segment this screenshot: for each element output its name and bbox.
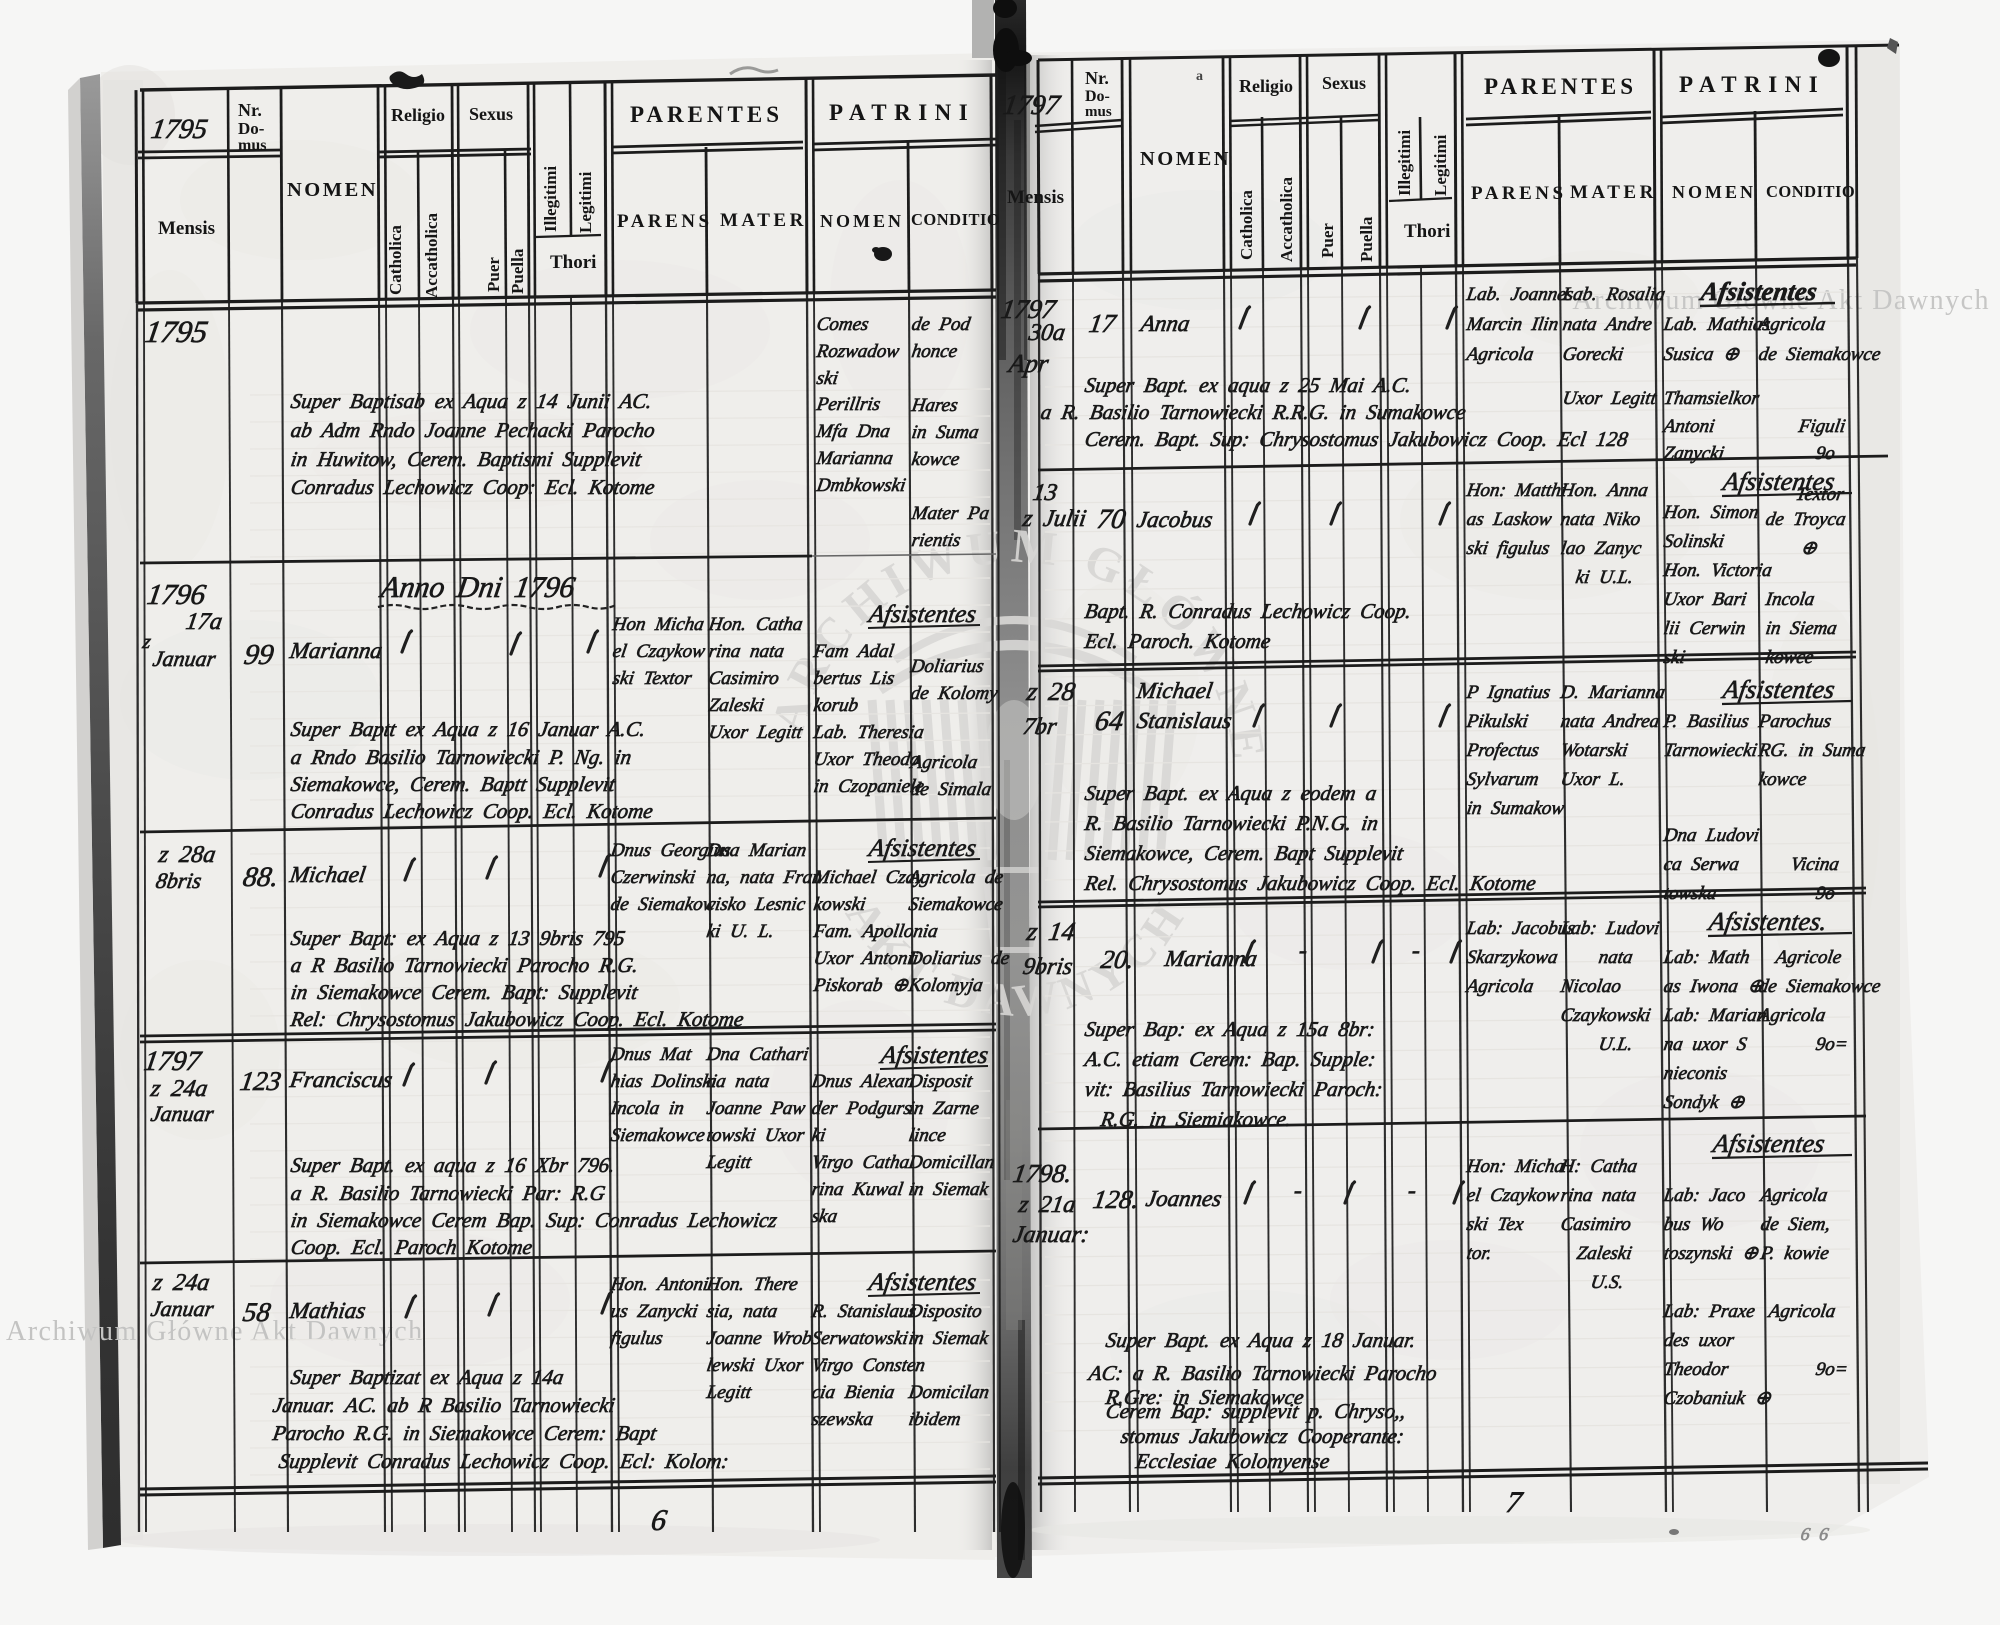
- svg-text:Do-: Do-: [238, 119, 265, 138]
- svg-text:Serwatowski: Serwatowski: [810, 1328, 909, 1349]
- svg-text:Agricola: Agricola: [1765, 1301, 1837, 1322]
- svg-text:szewska: szewska: [810, 1409, 875, 1430]
- svg-text:kowce: kowce: [1757, 769, 1808, 790]
- svg-text:Legitimi: Legitimi: [1431, 134, 1450, 196]
- svg-text:in Siemak: in Siemak: [907, 1179, 990, 1200]
- svg-text:towski Uxor: towski Uxor: [705, 1125, 806, 1146]
- svg-text:9bris: 9bris: [1021, 953, 1075, 980]
- svg-text:Conradus Lechowicz Coop. Ec: Conradus Lechowicz Coop. Ecl. Kotome: [289, 799, 655, 823]
- svg-text:Parocho R.G. in Siemakowce Ce: Parocho R.G. in Siemakowce Cerem: Bapt: [270, 1421, 659, 1445]
- svg-text:P. Basilius: P. Basilius: [1661, 711, 1750, 732]
- svg-text:in Czopaniele: in Czopaniele: [812, 776, 926, 797]
- svg-text:us Zanycki: us Zanycki: [609, 1301, 699, 1322]
- svg-text:1798.: 1798.: [1011, 1159, 1074, 1188]
- svg-text:Rel: Chrysostomus Jakubowicz: Rel: Chrysostomus Jakubowicz Coop. Ecl. …: [288, 1007, 745, 1031]
- svg-text:Theodor: Theodor: [1662, 1359, 1730, 1380]
- svg-text:de Siem,: de Siem,: [1759, 1214, 1832, 1235]
- svg-text:NOMEN: NOMEN: [1672, 182, 1756, 202]
- svg-text:Dna Ludovi: Dna Ludovi: [1661, 825, 1761, 846]
- svg-text:Hon. Catha: Hon. Catha: [706, 614, 804, 635]
- svg-text:R.G. in Siemiakowce.: R.G. in Siemiakowce.: [1098, 1107, 1293, 1131]
- svg-text:Lab: Math: Lab: Math: [1661, 947, 1751, 968]
- svg-text:des uxor: des uxor: [1662, 1330, 1736, 1351]
- svg-text:nata: nata: [1597, 947, 1634, 968]
- svg-text:Czobaniuk ⊕: Czobaniuk ⊕: [1662, 1388, 1773, 1409]
- svg-text:Czerwinski: Czerwinski: [609, 867, 697, 888]
- svg-text:Sylvarum: Sylvarum: [1465, 769, 1540, 790]
- svg-text:Doliarius de: Doliarius de: [906, 948, 1011, 969]
- svg-text:13: 13: [1031, 479, 1059, 506]
- svg-text:AC: a R. Basilio Tarnowiecki: AC: a R. Basilio Tarnowiecki Parocho: [1085, 1361, 1438, 1385]
- svg-text:z 24a: z 24a: [148, 1075, 210, 1102]
- svg-text:Agricola: Agricola: [1755, 1005, 1827, 1026]
- svg-text:1797: 1797: [142, 1046, 205, 1077]
- svg-text:R. Stanislaus: R. Stanislaus: [809, 1301, 917, 1322]
- svg-text:Afsistentes: Afsistentes: [865, 601, 978, 628]
- svg-text:9o=: 9o=: [1814, 1034, 1849, 1055]
- svg-text:Incola in: Incola in: [608, 1098, 685, 1119]
- svg-text:korub: korub: [812, 695, 860, 716]
- svg-text:hias Dolinski: hias Dolinski: [609, 1071, 718, 1092]
- svg-text:Lab: Ludovi: Lab: Ludovi: [1558, 918, 1661, 939]
- svg-text:nata Niko: nata Niko: [1559, 509, 1642, 530]
- svg-text:Skarzykowa: Skarzykowa: [1465, 947, 1559, 968]
- svg-text:Agricola de: Agricola de: [905, 867, 1005, 888]
- svg-text:Anna: Anna: [1137, 311, 1192, 337]
- svg-text:Fam. Apollonia: Fam. Apollonia: [811, 921, 939, 942]
- svg-text:Zaleski: Zaleski: [707, 695, 765, 716]
- svg-text:Puella: Puella: [508, 248, 527, 294]
- svg-text:Legitimi: Legitimi: [576, 171, 595, 233]
- svg-text:Religio: Religio: [1239, 76, 1293, 96]
- svg-text:Hon. Anna: Hon. Anna: [1558, 480, 1649, 501]
- svg-text:stomus Jakubowicz Cooperante: stomus Jakubowicz Cooperante:: [1119, 1424, 1406, 1448]
- svg-text:toszynski ⊕: toszynski ⊕: [1662, 1243, 1761, 1264]
- svg-text:Stanislaus: Stanislaus: [1135, 708, 1234, 734]
- svg-text:bertus Lis: bertus Lis: [812, 668, 896, 689]
- svg-text:ki U. L.: ki U. L.: [705, 921, 775, 942]
- svg-text:1795: 1795: [149, 114, 210, 145]
- svg-text:Agricola: Agricola: [1463, 344, 1535, 365]
- svg-text:a R. Basilio Tarnowiecki R.R.: a R. Basilio Tarnowiecki R.R.G. in Sumak…: [1039, 400, 1467, 424]
- svg-text:CONDITIO: CONDITIO: [1766, 182, 1855, 201]
- svg-text:Hon. Antoni: Hon. Antoni: [608, 1274, 710, 1295]
- svg-text:Nicolao: Nicolao: [1558, 976, 1622, 997]
- svg-text:PARENTES: PARENTES: [1484, 74, 1637, 99]
- svg-text:ski: ski: [1662, 647, 1686, 668]
- svg-text:Kolomyja: Kolomyja: [906, 975, 984, 996]
- svg-text:figulus: figulus: [609, 1328, 664, 1349]
- svg-text:Tarnowiecki: Tarnowiecki: [1662, 740, 1759, 761]
- svg-text:Lab: Praxe: Lab: Praxe: [1661, 1301, 1757, 1322]
- svg-text:Januar: Januar: [151, 646, 218, 671]
- svg-text:Disposito: Disposito: [906, 1301, 983, 1322]
- svg-text:Incola: Incola: [1763, 589, 1816, 610]
- svg-text:Religio: Religio: [391, 105, 445, 125]
- svg-text:Mathias: Mathias: [287, 1298, 367, 1324]
- svg-text:Figuli: Figuli: [1796, 416, 1847, 437]
- svg-text:Afsistentes: Afsistentes: [1719, 675, 1837, 704]
- svg-text:Michael: Michael: [287, 862, 367, 888]
- svg-text:Puer: Puer: [484, 257, 503, 292]
- svg-text:Januar. AC. ab R Basilio Tarno: Januar. AC. ab R Basilio Tarnowiecki: [271, 1393, 617, 1417]
- svg-text:MATER: MATER: [1570, 182, 1657, 203]
- svg-text:Afsistentes.: Afsistentes.: [1705, 907, 1829, 936]
- svg-text:Afsistentes: Afsistentes: [877, 1042, 990, 1069]
- svg-text:ski: ski: [815, 368, 839, 389]
- svg-text:9o: 9o: [1814, 883, 1836, 904]
- svg-text:Lab: Jaco: Lab: Jaco: [1661, 1185, 1747, 1206]
- svg-text:PARENS: PARENS: [1471, 183, 1567, 204]
- svg-text:Super Bapt. ex Aqua z 18 J: Super Bapt. ex Aqua z 18 Januar.: [1104, 1328, 1417, 1352]
- svg-text:mus: mus: [1085, 104, 1112, 120]
- svg-text:Afsistentes: Afsistentes: [865, 1269, 978, 1296]
- svg-text:Perillris: Perillris: [814, 394, 882, 415]
- svg-text:Antoni: Antoni: [1660, 416, 1716, 437]
- svg-text:kowski: kowski: [812, 894, 867, 915]
- svg-text:tor.: tor.: [1465, 1243, 1493, 1264]
- svg-text:Rozwadow: Rozwadow: [814, 341, 901, 362]
- svg-text:Super Bapt. ex aqua z 16 Xbr: Super Bapt. ex aqua z 16 Xbr 796.: [289, 1153, 616, 1177]
- svg-text:Lab: Marian: Lab: Marian: [1661, 1005, 1768, 1026]
- svg-text:Mensis: Mensis: [158, 218, 215, 239]
- svg-text:Dna Cathari: Dna Cathari: [704, 1044, 810, 1065]
- svg-text:NOMEN: NOMEN: [1140, 148, 1231, 170]
- svg-text:Hares: Hares: [909, 395, 959, 416]
- svg-text:Bapt. R. Conradus Lechowicz: Bapt. R. Conradus Lechowicz Coop.: [1083, 599, 1413, 623]
- svg-text:nieconis: nieconis: [1662, 1063, 1729, 1084]
- svg-text:Super Bapt: ex Aqua z 13 9br: Super Bapt: ex Aqua z 13 9bris 795: [289, 926, 627, 950]
- svg-text:as Laskow: as Laskow: [1465, 509, 1553, 530]
- svg-text:a R. Basilio Tarnowiecki Par:: a R. Basilio Tarnowiecki Par: R.G: [289, 1181, 607, 1205]
- svg-text:RG. in Suma: RG. in Suma: [1756, 740, 1867, 761]
- svg-text:de Siemakowce: de Siemakowce: [1757, 976, 1882, 997]
- svg-text:Dnus Alexan: Dnus Alexan: [809, 1071, 916, 1092]
- svg-text:lince: lince: [907, 1125, 948, 1146]
- svg-text:Mfa Dna: Mfa Dna: [814, 421, 891, 442]
- svg-text:de Siemakow: de Siemakow: [609, 894, 717, 915]
- svg-text:Coop. Ecl. Paroch Kotome: Coop. Ecl. Paroch Kotome: [289, 1235, 534, 1259]
- svg-text:Puer: Puer: [1318, 223, 1337, 258]
- svg-text:Siemakowce, Cerem. Baptt Su: Siemakowce, Cerem. Baptt Supplevit: [289, 772, 618, 796]
- svg-text:A.C. etiam Cerem: Bap. Supple:: A.C. etiam Cerem: Bap. Supple:: [1081, 1047, 1377, 1071]
- svg-text:Mater Pa: Mater Pa: [909, 503, 991, 524]
- svg-text:Nr.: Nr.: [238, 100, 262, 120]
- svg-text:Michael: Michael: [1134, 678, 1214, 704]
- svg-text:H: Catha: H: Catha: [1558, 1156, 1639, 1177]
- svg-text:Virgo Catha: Virgo Catha: [810, 1152, 911, 1173]
- svg-text:a: a: [1196, 69, 1203, 84]
- svg-text:Marianna: Marianna: [287, 638, 384, 664]
- svg-text:Franciscus: Franciscus: [287, 1067, 394, 1093]
- svg-text:PATRINI: PATRINI: [1679, 72, 1825, 97]
- svg-text:Agricola: Agricola: [1757, 1185, 1829, 1206]
- svg-text:cia Bienia: cia Bienia: [810, 1382, 896, 1403]
- svg-text:Hon. Simon: Hon. Simon: [1661, 502, 1760, 523]
- svg-text:Nr.: Nr.: [1085, 68, 1109, 88]
- svg-text:lii Cerwin: lii Cerwin: [1662, 618, 1747, 639]
- svg-text:Siemakowce: Siemakowce: [907, 894, 1005, 915]
- svg-text:PARENS: PARENS: [617, 211, 713, 232]
- svg-text:Sondyk ⊕: Sondyk ⊕: [1662, 1092, 1747, 1113]
- svg-text:Fam Adal: Fam Adal: [811, 641, 895, 662]
- svg-text:Marianna: Marianna: [814, 448, 894, 469]
- svg-text:Rel. Chrysostomus Jakubowicz: Rel. Chrysostomus Jakubowicz Coop. Ecl. …: [1082, 871, 1537, 895]
- svg-text:1797: 1797: [1001, 90, 1064, 121]
- svg-text:in Siema: in Siema: [1764, 618, 1838, 639]
- svg-text:Siemakowce, Cerem. Bapt Sup: Siemakowce, Cerem. Bapt Supplevit: [1083, 841, 1406, 865]
- svg-text:kowce: kowce: [1764, 647, 1815, 668]
- svg-text:88.: 88.: [241, 862, 281, 893]
- svg-text:Parochus: Parochus: [1756, 711, 1832, 732]
- svg-text:CONDITIO: CONDITIO: [911, 210, 1000, 229]
- svg-text:Thori: Thori: [550, 252, 596, 273]
- svg-text:9o=: 9o=: [1814, 1359, 1849, 1380]
- svg-text:Afsistentes: Afsistentes: [1709, 1129, 1827, 1158]
- svg-text:mus: mus: [238, 137, 266, 154]
- svg-text:30a: 30a: [1026, 319, 1067, 346]
- svg-text:123: 123: [238, 1066, 283, 1096]
- svg-text:vit: Basilius Tarnowiecki Paro: vit: Basilius Tarnowiecki Paroch:: [1083, 1077, 1384, 1101]
- svg-text:Dnus Mat: Dnus Mat: [608, 1044, 693, 1065]
- svg-text:Zanycki: Zanycki: [1662, 443, 1725, 464]
- svg-text:nata Andre: nata Andre: [1561, 314, 1654, 335]
- svg-text:Joanne Paw: Joanne Paw: [705, 1098, 807, 1119]
- svg-text:honce: honce: [910, 341, 959, 362]
- svg-text:Uxor Legitt: Uxor Legitt: [1561, 388, 1658, 409]
- svg-text:in Siemak: in Siemak: [907, 1328, 990, 1349]
- svg-text:Accatholica: Accatholica: [422, 213, 441, 298]
- svg-text:Joanne Wrob: Joanne Wrob: [705, 1328, 813, 1349]
- svg-text:Domicillan: Domicillan: [906, 1152, 996, 1173]
- svg-text:nata Andrea: nata Andrea: [1559, 711, 1661, 732]
- svg-text:Uxor L.: Uxor L.: [1559, 769, 1626, 790]
- svg-text:de Troyca: de Troyca: [1764, 509, 1847, 530]
- svg-text:Legitt: Legitt: [704, 1382, 753, 1403]
- svg-text:R. Basilio Tarnowiecki P.N.G: R. Basilio Tarnowiecki P.N.G. in: [1082, 811, 1380, 835]
- svg-text:Jacobus: Jacobus: [1135, 507, 1214, 533]
- svg-text:Disposit: Disposit: [906, 1071, 974, 1092]
- svg-text:Hon Micha: Hon Micha: [610, 614, 705, 635]
- svg-text:a Rndo Basilio Tarnowiecki P.: a Rndo Basilio Tarnowiecki P. Ng. in: [289, 745, 633, 769]
- svg-text:de Simala: de Simala: [909, 779, 993, 800]
- svg-text:Accatholica: Accatholica: [1277, 177, 1296, 262]
- svg-text:z 14: z 14: [1024, 917, 1077, 946]
- svg-text:el Czaykow: el Czaykow: [1465, 1185, 1561, 1206]
- svg-text:Agricola: Agricola: [1755, 314, 1827, 335]
- svg-text:rientis: rientis: [910, 530, 962, 551]
- svg-text:P. kowie: P. kowie: [1758, 1243, 1831, 1264]
- svg-text:Uxor Antonii: Uxor Antonii: [812, 948, 920, 969]
- svg-text:Super Baptizat ex Aqua z 1: Super Baptizat ex Aqua z 14a: [289, 1365, 565, 1389]
- svg-text:in Siemakowce Cerem Bap. Sup: in Siemakowce Cerem Bap. Sup: Conradus L…: [289, 1208, 779, 1232]
- svg-text:Super Bapt. ex aqua z 25 Mai: Super Bapt. ex aqua z 25 Mai A.C.: [1083, 373, 1413, 397]
- svg-text:Hon: Matthi: Hon: Matthi: [1464, 480, 1568, 501]
- svg-text:Apr: Apr: [1005, 349, 1051, 378]
- svg-text:7br: 7br: [1021, 713, 1059, 740]
- svg-text:Solinski: Solinski: [1662, 531, 1725, 552]
- svg-text:Uxor Legitt: Uxor Legitt: [707, 722, 804, 743]
- svg-text:Dna Marian: Dna Marian: [704, 840, 808, 861]
- svg-text:as Iwona ⊕: as Iwona ⊕: [1662, 976, 1766, 997]
- svg-text:Ecclesiae Kolomyense: Ecclesiae Kolomyense: [1133, 1449, 1331, 1473]
- svg-text:ska: ska: [810, 1206, 839, 1227]
- svg-text:ski figulus: ski figulus: [1465, 538, 1551, 559]
- svg-text:na uxor S: na uxor S: [1662, 1034, 1749, 1055]
- svg-text:in Siemakowce Cerem. Bapt: Sup: in Siemakowce Cerem. Bapt: Supplevit: [289, 980, 640, 1004]
- svg-text:1795: 1795: [143, 314, 210, 349]
- svg-text:PATRINI: PATRINI: [829, 100, 975, 125]
- svg-text:Doliarius: Doliarius: [908, 656, 985, 677]
- svg-text:Catholica: Catholica: [1237, 190, 1256, 260]
- svg-text:Uxor Bari: Uxor Bari: [1662, 589, 1748, 610]
- svg-text:Afsistentes: Afsistentes: [865, 835, 978, 862]
- svg-text:z 28: z 28: [1024, 677, 1077, 706]
- svg-text:Wotarski: Wotarski: [1559, 740, 1629, 761]
- svg-text:Marcin Ilin: Marcin Ilin: [1464, 314, 1560, 335]
- svg-text:PARENTES: PARENTES: [630, 102, 783, 127]
- svg-text:Do-: Do-: [1085, 88, 1110, 105]
- svg-text:in Zarne: in Zarne: [907, 1098, 981, 1119]
- svg-text:ibidem: ibidem: [907, 1409, 962, 1430]
- svg-text:NOMEN: NOMEN: [820, 211, 904, 231]
- svg-text:Piskorab ⊕: Piskorab ⊕: [811, 975, 911, 996]
- svg-text:bus Wo: bus Wo: [1662, 1214, 1725, 1235]
- svg-text:Lab. Rosalia: Lab. Rosalia: [1560, 284, 1666, 305]
- svg-text:MATER: MATER: [720, 210, 807, 231]
- svg-text:Profectus: Profectus: [1464, 740, 1540, 761]
- svg-text:D. Marianna: D. Marianna: [1558, 682, 1666, 703]
- svg-text:Vicina: Vicina: [1789, 854, 1840, 875]
- svg-text:Thori: Thori: [1404, 221, 1450, 242]
- svg-text:Lab. Theresia: Lab. Theresia: [811, 722, 925, 743]
- svg-text:Illegitimi: Illegitimi: [541, 166, 560, 232]
- svg-text:Januar:: Januar:: [1011, 1221, 1091, 1248]
- svg-text:in Sumakow: in Sumakow: [1465, 798, 1566, 819]
- svg-text:Super Baptt ex Aqua z 16 Janu: Super Baptt ex Aqua z 16 Januar A.C.: [289, 717, 647, 741]
- svg-text:Susica ⊕: Susica ⊕: [1662, 344, 1742, 365]
- svg-text:ski Textor: ski Textor: [611, 668, 694, 689]
- svg-text:Legitt: Legitt: [704, 1152, 753, 1173]
- svg-text:cisko Lesnic: cisko Lesnic: [705, 894, 807, 915]
- svg-text:Virgo Consten: Virgo Consten: [810, 1355, 926, 1376]
- svg-text:20.: 20.: [1099, 945, 1136, 974]
- svg-text:lao Zanyc: lao Zanyc: [1559, 538, 1643, 559]
- svg-text:de Pod: de Pod: [910, 314, 972, 335]
- svg-text:rina Kuwal: rina Kuwal: [810, 1179, 904, 1200]
- svg-text:Super Bapt. ex Aqua z eode: Super Bapt. ex Aqua z eodem a: [1083, 781, 1378, 805]
- svg-text:Cerem. Bapt. Sup: Chrysostomu: Cerem. Bapt. Sup: Chrysostomus Jakubowic…: [1083, 427, 1630, 451]
- svg-text:P Ignatius: P Ignatius: [1464, 682, 1552, 703]
- svg-text:Uxor Theodo: Uxor Theodo: [812, 749, 921, 770]
- svg-text:Agricola: Agricola: [1463, 976, 1535, 997]
- svg-text:sia, nata: sia, nata: [705, 1301, 779, 1322]
- svg-text:Januar: Januar: [149, 1101, 216, 1126]
- svg-text:U.S.: U.S.: [1589, 1272, 1625, 1293]
- svg-text:z 24a: z 24a: [150, 1269, 212, 1296]
- svg-text:der Podgurs: der Podgurs: [810, 1098, 913, 1119]
- svg-text:ski Tex: ski Tex: [1465, 1214, 1525, 1235]
- svg-text:Lab. Mathias: Lab. Mathias: [1661, 314, 1772, 335]
- svg-text:Textor: Textor: [1794, 484, 1846, 505]
- svg-text:Casimiro: Casimiro: [707, 668, 780, 689]
- svg-text:rina nata: rina nata: [1559, 1185, 1637, 1206]
- svg-text:Agricola: Agricola: [907, 752, 979, 773]
- svg-text:el Czaykow: el Czaykow: [611, 641, 707, 662]
- svg-text:Super Baptisab ex Aqua z 14: Super Baptisab ex Aqua z 14 Junii AC.: [289, 389, 654, 413]
- svg-text:Dmbkowski: Dmbkowski: [814, 475, 907, 496]
- svg-text:in Huwitow, Cerem. Baptismi Su: in Huwitow, Cerem. Baptismi Supplevit: [289, 447, 644, 471]
- svg-text:58: 58: [241, 1297, 273, 1327]
- svg-text:Januar: Januar: [149, 1296, 216, 1321]
- svg-text:Hon. There: Hon. There: [704, 1274, 800, 1295]
- svg-text:Sexus: Sexus: [1322, 73, 1366, 93]
- svg-text:Thamsielkor: Thamsielkor: [1662, 388, 1761, 409]
- svg-text:Pikulski: Pikulski: [1464, 711, 1529, 732]
- svg-text:Super Bap: ex Aqua z 15a 8br: Super Bap: ex Aqua z 15a 8br:: [1083, 1017, 1376, 1041]
- svg-text:z 21a: z 21a: [1016, 1191, 1078, 1218]
- svg-text:towska: towska: [1662, 883, 1718, 904]
- svg-text:Sexus: Sexus: [469, 104, 513, 124]
- svg-text:Anno Dni 1796: Anno Dni 1796: [377, 570, 578, 604]
- svg-text:17a: 17a: [184, 608, 224, 635]
- svg-text:Czaykowski: Czaykowski: [1559, 1005, 1652, 1026]
- svg-text:in Suma: in Suma: [910, 422, 980, 443]
- svg-text:Hon: Micha: Hon: Micha: [1464, 1156, 1566, 1177]
- svg-text:de Siemakowce: de Siemakowce: [1757, 344, 1882, 365]
- svg-text:Catholica: Catholica: [386, 225, 405, 295]
- svg-text:Agricole: Agricole: [1772, 947, 1843, 968]
- svg-text:Gorecki: Gorecki: [1561, 344, 1625, 365]
- svg-text:Joannes: Joannes: [1144, 1186, 1223, 1212]
- svg-text:z 28a: z 28a: [156, 841, 218, 868]
- svg-text:Comes: Comes: [815, 314, 870, 335]
- svg-text:9o: 9o: [1814, 443, 1836, 464]
- svg-text:z Julii: z Julii: [1020, 505, 1088, 532]
- svg-text:128.: 128.: [1091, 1185, 1141, 1214]
- svg-text:lewski Uxor: lewski Uxor: [705, 1355, 805, 1376]
- svg-text:a R Basilio Tarnowiecki Paroch: a R Basilio Tarnowiecki Parocho R.G.: [289, 953, 640, 977]
- svg-text:Lab. Joannes: Lab. Joannes: [1464, 284, 1575, 305]
- svg-text:U.L.: U.L.: [1597, 1034, 1634, 1055]
- svg-text:Hon. Victoria: Hon. Victoria: [1661, 560, 1773, 581]
- svg-text:Supplevit Conradus Lechowicz: Supplevit Conradus Lechowicz Coop. Ecl: …: [277, 1449, 730, 1473]
- svg-text:Cerem Bap: supplevit p. Chry: Cerem Bap: supplevit p. Chryso,,: [1104, 1399, 1407, 1423]
- svg-text:Puella: Puella: [1357, 216, 1376, 262]
- svg-text:99: 99: [242, 639, 276, 671]
- svg-text:Afsistentes: Afsistentes: [1697, 277, 1819, 306]
- svg-text:de Kolomy: de Kolomy: [909, 683, 1000, 704]
- svg-text:Siemakowce: Siemakowce: [609, 1125, 707, 1146]
- svg-text:na, nata Fran: na, nata Fran: [705, 867, 823, 888]
- svg-text:na nata: na nata: [705, 1071, 771, 1092]
- svg-text:Illegitimi: Illegitimi: [1395, 130, 1414, 196]
- svg-text:Mensis: Mensis: [1007, 187, 1064, 208]
- svg-text:Domicilan: Domicilan: [906, 1382, 990, 1403]
- svg-text:NOMEN: NOMEN: [287, 179, 378, 201]
- svg-text:Ecl. Paroch. Kotome: Ecl. Paroch. Kotome: [1082, 629, 1272, 653]
- svg-text:ab Adm Rndo Joanne Pechacki P: ab Adm Rndo Joanne Pechacki Parocho: [289, 418, 657, 442]
- svg-text:6 6: 6 6: [1799, 1524, 1830, 1544]
- svg-text:Conradus Lechowicz Coop: Ecl.: Conradus Lechowicz Coop: Ecl. Kotome: [289, 475, 656, 499]
- svg-text:64: 64: [1093, 706, 1126, 737]
- svg-text:rina nata: rina nata: [707, 641, 785, 662]
- svg-text:Zaleski: Zaleski: [1575, 1243, 1633, 1264]
- svg-text:1796: 1796: [145, 579, 208, 611]
- svg-text:kowce: kowce: [910, 449, 961, 470]
- svg-text:8bris: 8bris: [154, 868, 203, 893]
- svg-text:70: 70: [1095, 504, 1128, 535]
